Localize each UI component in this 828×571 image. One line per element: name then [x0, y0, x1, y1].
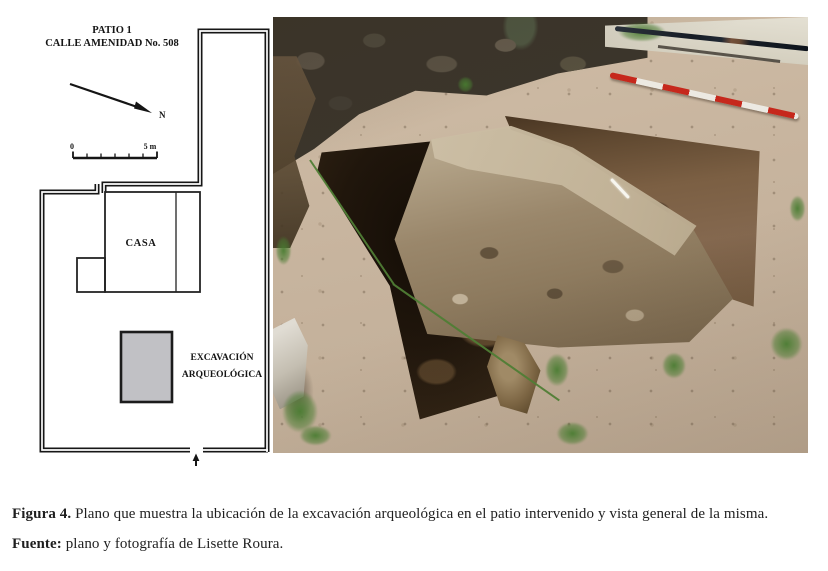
grass-patch [455, 74, 476, 96]
scale-bar: 0 5 m [70, 142, 157, 158]
source-caption-text: plano y fotografía de Lisette Roura. [62, 536, 284, 552]
grass-patch [787, 191, 808, 226]
scale-zero-label: 0 [70, 142, 74, 151]
grass-patch [765, 322, 808, 366]
plan-title-line2: CALLE AMENIDAD No. 508 [45, 38, 179, 49]
north-label: N [159, 110, 166, 120]
excavation-area-marker [121, 332, 172, 402]
figure-label: Figura 4. [12, 506, 71, 522]
grass-patch [551, 418, 594, 449]
plan-title-line1: PATIO 1 [92, 25, 132, 36]
site-plan: PATIO 1 CALLE AMENIDAD No. 508 N 0 5 m [0, 0, 273, 480]
grass-patch [294, 422, 337, 448]
source-caption: Fuente: plano y fotografía de Lisette Ro… [12, 536, 283, 553]
entrance-arrow-icon [193, 454, 200, 467]
excavation-label-line2: ARQUEOLÓGICA [182, 368, 262, 380]
source-label: Fuente: [12, 536, 62, 552]
figure-caption-text: Plano que muestra la ubicación de la exc… [71, 506, 768, 522]
figure-caption: Figura 4. Plano que muestra la ubicación… [12, 506, 768, 523]
grass-patch [541, 348, 573, 392]
casa-label: CASA [126, 238, 157, 249]
scale-max-label: 5 m [144, 142, 157, 151]
grass-patch [658, 348, 690, 383]
excavation-label-line1: EXCAVACIÓN [191, 351, 254, 363]
grass-patch [273, 231, 294, 270]
excavation-photo [273, 17, 808, 453]
north-arrow-icon: N [70, 84, 166, 120]
